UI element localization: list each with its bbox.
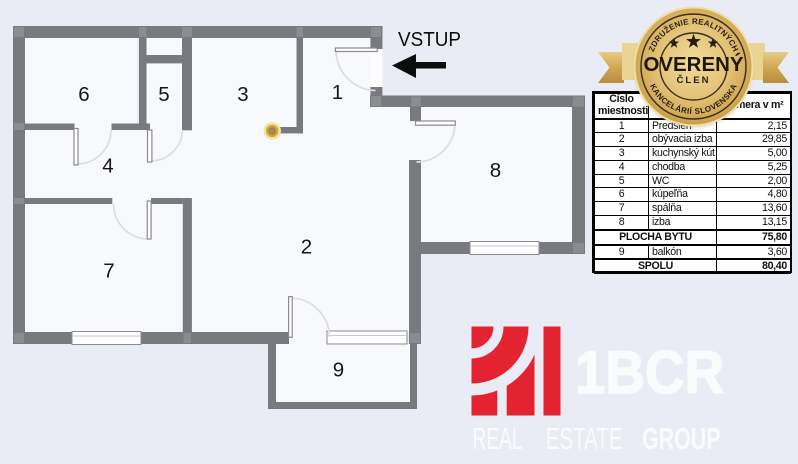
svg-text:ČLEN: ČLEN: [676, 74, 710, 86]
svg-text:ESTATE: ESTATE: [546, 421, 623, 456]
svg-text:7: 7: [103, 260, 114, 283]
svg-text:8: 8: [490, 159, 501, 182]
svg-text:REAL: REAL: [473, 421, 523, 456]
svg-text:5: 5: [158, 83, 169, 106]
svg-text:1BCR: 1BCR: [575, 339, 724, 406]
svg-text:9: 9: [333, 359, 344, 382]
svg-text:OVERENÝ: OVERENÝ: [644, 52, 745, 76]
svg-text:4: 4: [102, 155, 113, 178]
svg-text:1: 1: [332, 81, 343, 104]
svg-text:3: 3: [237, 83, 248, 106]
svg-text:VSTUP: VSTUP: [398, 29, 461, 51]
svg-text:GROUP: GROUP: [642, 421, 721, 456]
svg-text:2: 2: [301, 236, 312, 259]
svg-text:6: 6: [78, 83, 89, 106]
